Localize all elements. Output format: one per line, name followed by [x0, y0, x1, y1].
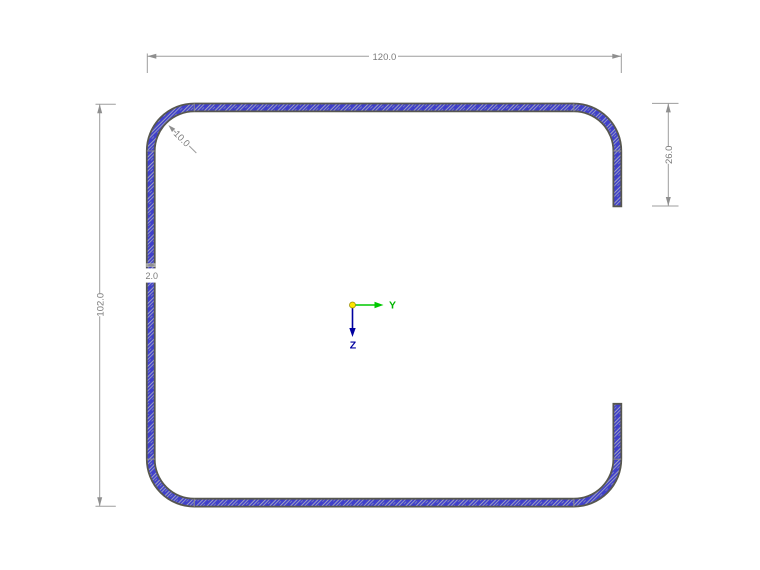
svg-text:120.0: 120.0 — [373, 52, 397, 63]
svg-text:10.0: 10.0 — [171, 129, 192, 150]
svg-text:2.0: 2.0 — [146, 271, 159, 281]
svg-text:Z: Z — [350, 340, 357, 352]
svg-text:26.0: 26.0 — [664, 146, 675, 165]
svg-text:Y: Y — [389, 300, 396, 312]
svg-text:102.0: 102.0 — [96, 293, 107, 317]
